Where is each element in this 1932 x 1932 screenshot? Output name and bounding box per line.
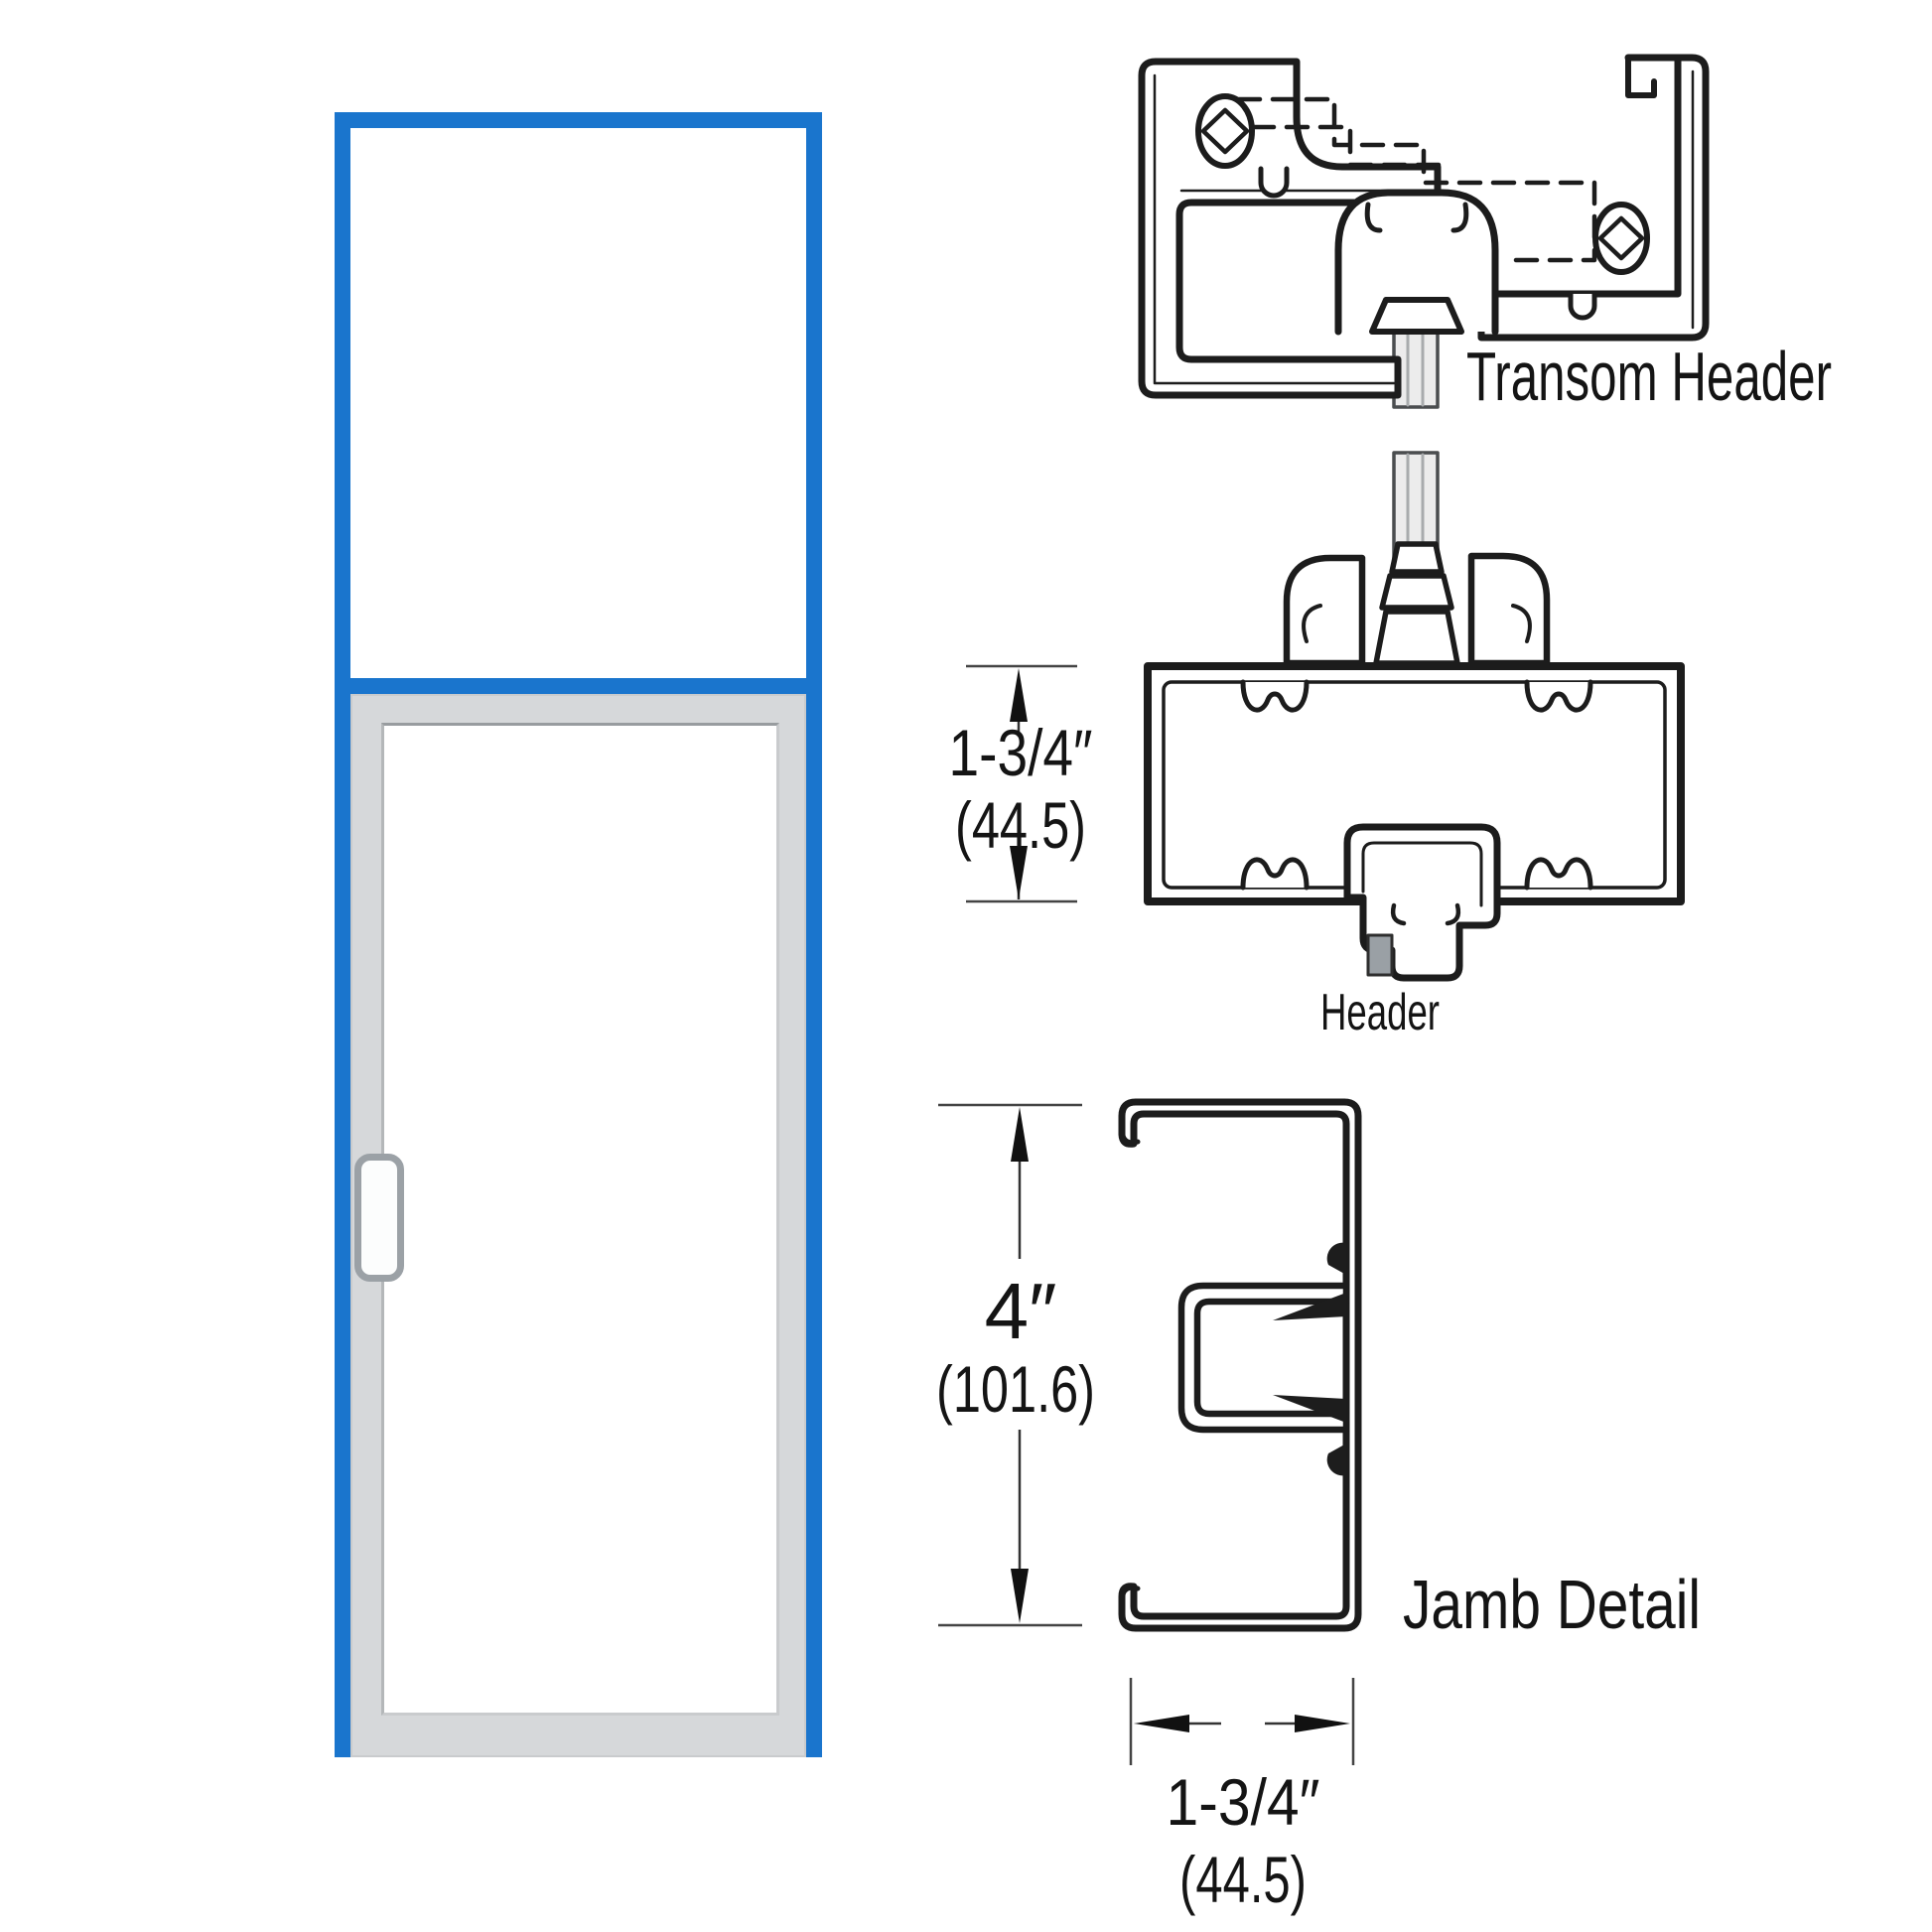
dimension-arrow-icon bbox=[1011, 1569, 1029, 1623]
header-height-metric: (44.5) bbox=[955, 788, 1086, 862]
jamb-width-imperial: 1-3/4″ bbox=[1167, 1765, 1320, 1839]
jamb-profile bbox=[1122, 1102, 1358, 1628]
dimension-arrow-icon bbox=[1295, 1715, 1350, 1732]
page: Transom Header bbox=[0, 0, 1932, 1932]
kerf-clip-icon bbox=[1327, 1444, 1346, 1475]
transom-header-label: Transom Header bbox=[1466, 338, 1832, 415]
jamb-label: Jamb Detail bbox=[1403, 1566, 1701, 1643]
jamb-height-imperial: 4″ bbox=[985, 1267, 1057, 1355]
jamb-width-metric: (44.5) bbox=[1179, 1843, 1307, 1916]
detail-drawings: Transom Header bbox=[0, 0, 1932, 1932]
header-label: Header bbox=[1320, 984, 1440, 1041]
dimension-arrow-icon bbox=[1134, 1715, 1189, 1732]
fastener-icon bbox=[1595, 205, 1647, 272]
dimension-arrow-icon bbox=[1011, 1107, 1029, 1162]
dimension-arrow-icon bbox=[1010, 668, 1028, 722]
jamb-detail bbox=[1122, 1102, 1358, 1628]
glass-stop-profile bbox=[1471, 556, 1547, 663]
stop-clip-icon bbox=[1368, 935, 1392, 975]
glass-stop-profile bbox=[1287, 558, 1362, 663]
glazing-gasket-icon bbox=[1372, 300, 1461, 332]
screw-boss-icon bbox=[1261, 169, 1287, 196]
fastener-icon bbox=[1198, 96, 1252, 166]
jamb-height-metric: (101.6) bbox=[936, 1352, 1095, 1426]
kerf-clip-icon bbox=[1327, 1243, 1346, 1275]
header-detail bbox=[1148, 453, 1681, 978]
glazing-gasket-stack-icon bbox=[1376, 544, 1457, 663]
header-height-imperial: 1-3/4″ bbox=[949, 716, 1093, 789]
screw-boss-icon bbox=[1571, 294, 1594, 318]
jamb-width-dimension bbox=[1131, 1678, 1353, 1765]
